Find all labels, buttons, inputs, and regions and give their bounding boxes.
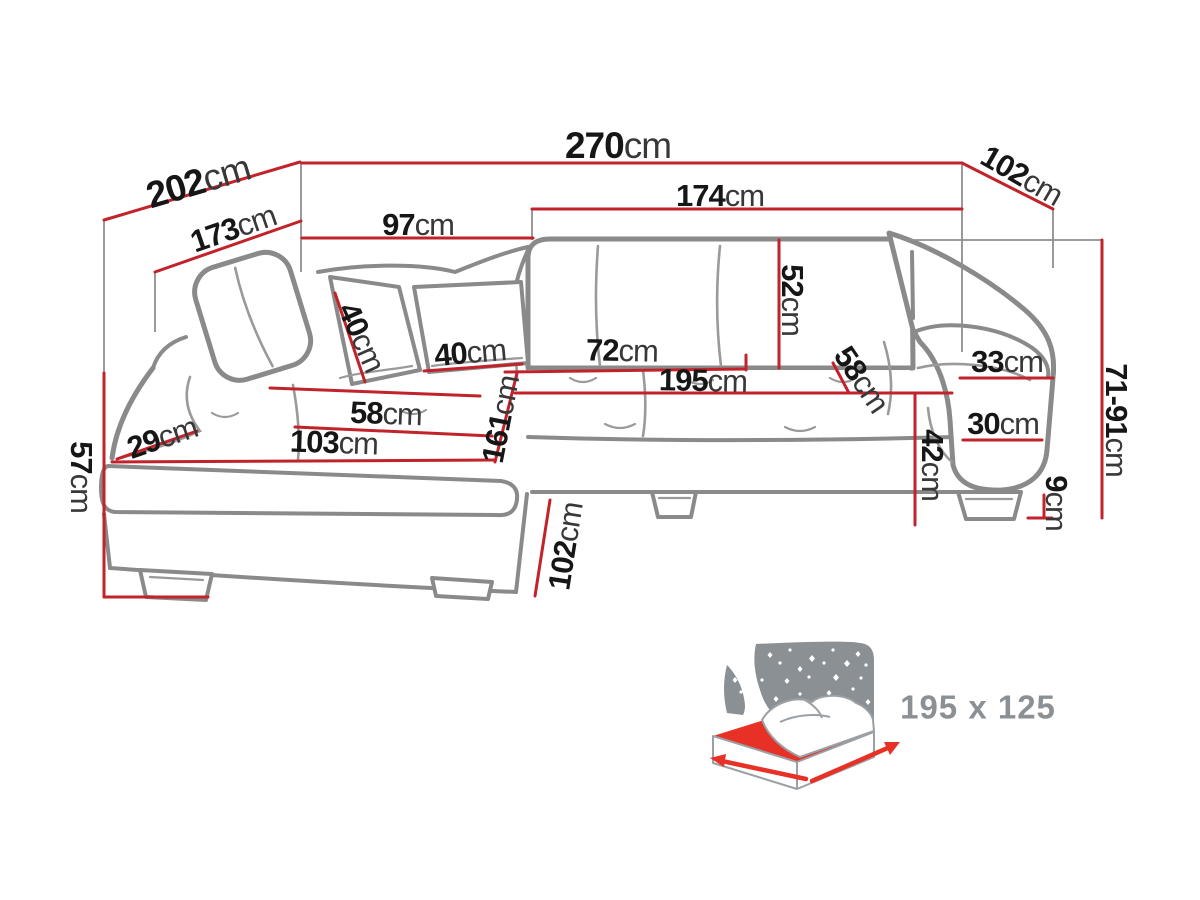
sleeping-function-icon: 195 x 125 [710,642,1056,789]
dimension-label-42: 42cm [916,429,951,501]
sofa-dimension-diagram: 202cm 173cm 97cm 270cm 102cm 174cm 52cm … [0,0,1200,900]
dimension-label-72: 72cm [586,332,658,368]
dimension-label-57: 57cm [65,441,100,513]
dimension-label-270: 270cm [565,125,671,166]
dimension-label-173: 173cm [186,197,281,259]
dimension-label-202: 202cm [141,146,254,215]
dimension-label-102-right: 102cm [975,138,1069,212]
dimension-label-174: 174cm [676,178,764,213]
dimension-label-103: 103cm [289,423,378,461]
dimension-label-52: 52cm [776,264,811,336]
dimension-label-195: 195cm [659,362,748,399]
starry-night-sliver [724,665,745,715]
dimension-label-40-right: 40cm [433,331,508,372]
adjustable-headrest [188,246,317,387]
dimension-label-30: 30cm [967,406,1039,441]
dimension-label-33: 33cm [971,344,1043,379]
sleeping-area-label: 195 x 125 [900,689,1056,726]
diagram-svg: 202cm 173cm 97cm 270cm 102cm 174cm 52cm … [0,0,1200,900]
dimension-label-71-91: 71-91cm [1100,363,1135,477]
dimension-label-9: 9cm [1040,475,1075,531]
dimension-label-97: 97cm [382,207,454,242]
